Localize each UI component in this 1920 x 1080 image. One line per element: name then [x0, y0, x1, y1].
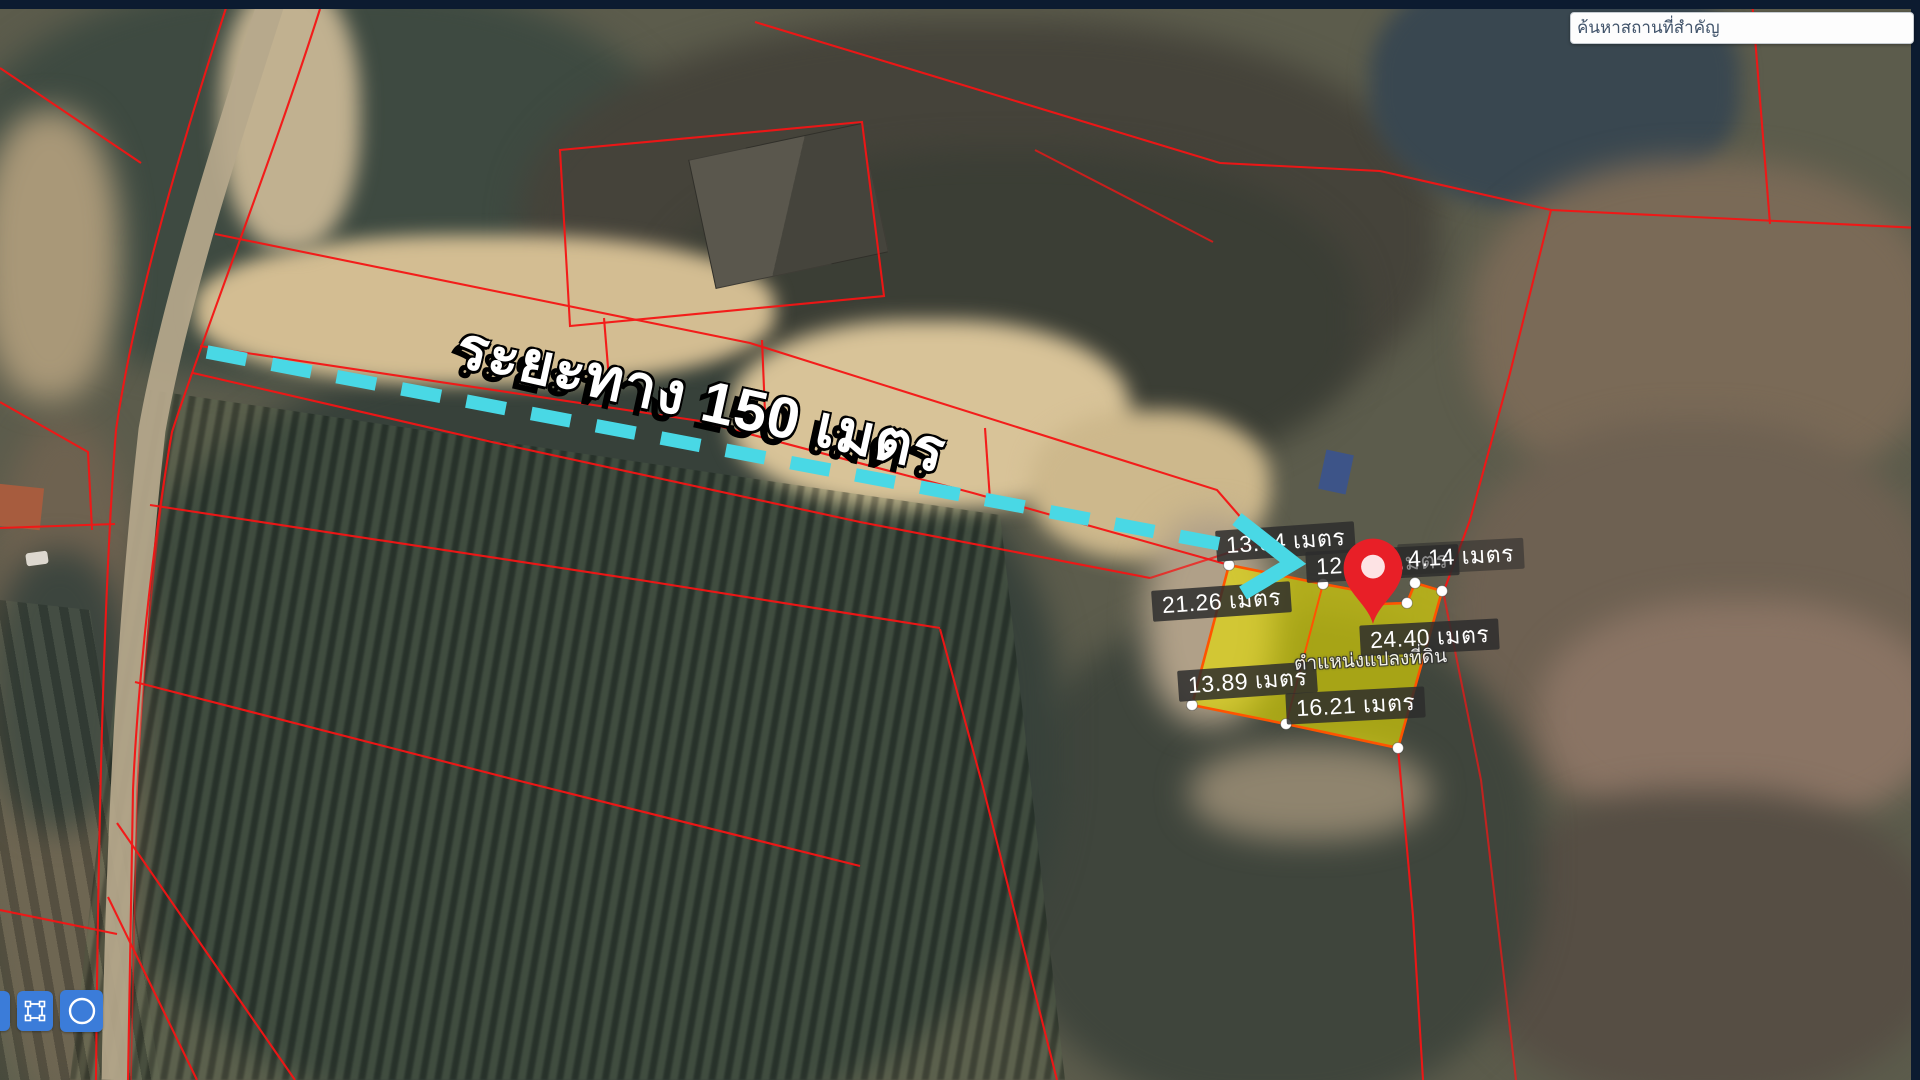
- terrain-sand-junction: [220, 0, 360, 250]
- draw-rectangle-icon: [23, 999, 47, 1023]
- right-navy-bar: [1911, 0, 1920, 1080]
- orange-roof-house: [0, 484, 44, 531]
- draw-tool-partial-button[interactable]: [0, 991, 10, 1031]
- draw-rectangle-button[interactable]: [17, 991, 53, 1031]
- draw-circle-icon: [67, 996, 97, 1026]
- draw-circle-button[interactable]: [60, 990, 103, 1032]
- terrain-sand-left: [0, 110, 120, 400]
- draw-tool-partial-icon: [0, 1000, 3, 1022]
- top-navy-bar: [0, 0, 1920, 9]
- map-canvas[interactable]: 13.84 เมตร 12.663 เมตร 4.14 เมตร 21.26 เ…: [0, 0, 1920, 1080]
- measurement-label: 4.14 เมตร: [1397, 538, 1524, 576]
- terrain-dirt: [1190, 745, 1430, 840]
- search-input[interactable]: [1570, 12, 1914, 44]
- blue-shed: [1318, 450, 1354, 495]
